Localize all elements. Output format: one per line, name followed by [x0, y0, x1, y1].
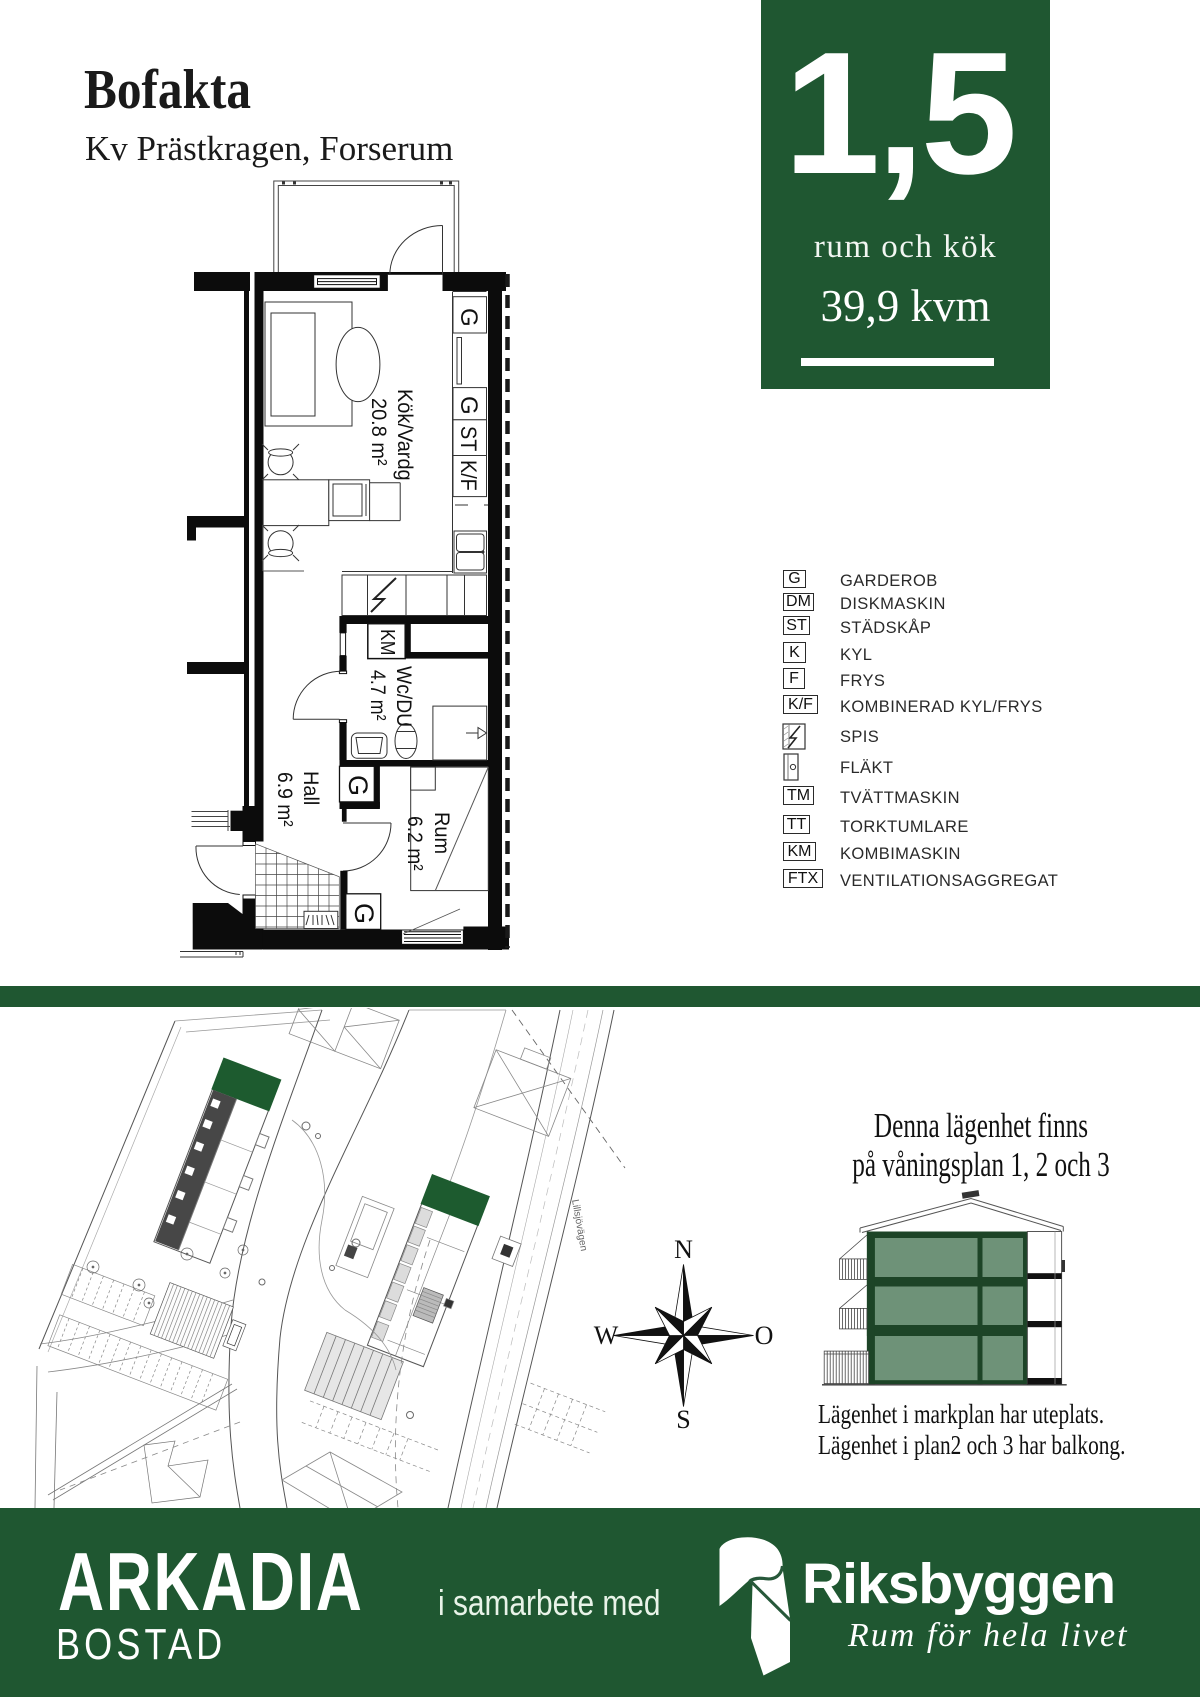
svg-text:S: S	[676, 1405, 690, 1434]
svg-text:W: W	[594, 1321, 619, 1350]
svg-text:O: O	[755, 1321, 774, 1350]
svg-text:Lillsjövägen: Lillsjövägen	[569, 1199, 589, 1252]
svg-text:N: N	[674, 1235, 693, 1264]
